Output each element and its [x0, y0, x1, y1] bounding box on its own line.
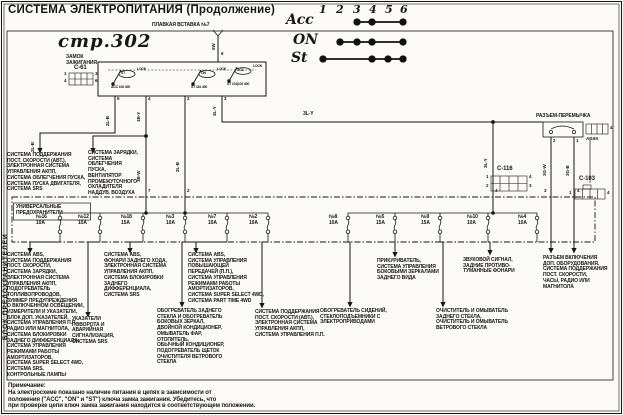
wire-label-2l-b-2: 2L-B [31, 142, 36, 152]
load-block-fuse8: ОБОГРЕВАТЕЛЬ СИДЕНИЙ, СТЕКЛОПОДЪЕМНИКИ С… [320, 309, 392, 326]
fusible-link-label: ПЛАВКАЯ ВСТАВКА №7 [152, 23, 209, 29]
connector-grid-icon-c61 [69, 73, 93, 85]
fuse-icon [393, 213, 397, 242]
wire-label-3l-y-bus: 3L-Y [303, 112, 313, 118]
key-col-3: 3 [353, 4, 361, 15]
wire-label-3g-w: 3G-W [543, 164, 548, 176]
key-col-2: 2 [336, 4, 344, 15]
fuse-5: №515A [376, 215, 385, 226]
fusebox-pin-4: 4 [495, 189, 497, 194]
fuse-7: №710A [208, 215, 217, 226]
wire-label-3g-b: 3G-B [566, 165, 571, 176]
key-row-acc: Acc [286, 13, 314, 27]
load-block-fuse9: ОЧИСТИТЕЛЬ И ОМЫВАТЕЛЬ ЗАДНЕГО СТЕКЛА, О… [436, 309, 510, 332]
junction-dot [492, 121, 495, 124]
load-block-fuse5: ПРИКУРИВАТЕЛЬ, СИСТЕМА УПРАВЛЕНИЯ БОКОВЫ… [377, 259, 447, 282]
pin-6: 6 [221, 52, 223, 57]
fuse-16: №1610A [36, 215, 47, 226]
fuse-8: №810A [329, 215, 338, 226]
fuse-icon [486, 213, 490, 242]
fuse-icon [535, 213, 539, 242]
page-title: СИСТЕМА ЭЛЕКТРОПИТАНИЯ (Продолжение) [8, 4, 275, 17]
jumper-connector-label: РАЗЪЕМ-ПЕРЕМЫЧКА [536, 114, 590, 120]
wire-label-2l-b: 2L-B [106, 116, 111, 126]
fuse-icon [58, 213, 62, 242]
jumper-connector-box [543, 122, 583, 137]
fuse-icon [438, 213, 442, 242]
connector-label-c116: C-116 [497, 167, 513, 173]
load-block-fuse4: РАЗЪЕМ ВКЛЮЧЕНИЯ ДОП. ОБОРУДОВАНИЯ, СИСТ… [543, 256, 609, 290]
c116-pin-4: 4 [529, 175, 531, 180]
fuse-18: №1815A [121, 215, 132, 226]
note-body: На электросхеме показано наличие питания… [8, 390, 608, 410]
key-table-marks [320, 19, 406, 62]
connector-grid-icon-a19x [586, 124, 608, 134]
key-row-on: ON [293, 33, 318, 47]
wire-label-1b-y: 1B-Y [137, 112, 142, 122]
c116-pin-2: 2 [486, 184, 488, 189]
fuse-icon [346, 213, 350, 242]
wire-label-5w: 5W [212, 43, 217, 50]
wiring-diagram-page: СИСТЕМА ЭЛЕКТРОПИТАНИЯ (Продолжение) 1 2… [0, 0, 623, 415]
jumper-pin-1: 1 [576, 139, 578, 144]
fuse-icon [98, 213, 102, 242]
c61-pin-6: 6 [95, 79, 97, 84]
c116-pin-1: 1 [486, 175, 488, 180]
key-col-1: 1 [319, 4, 327, 15]
junction-dot [145, 212, 148, 215]
c61-pin-3: 3 [95, 72, 97, 77]
key-col-5: 5 [385, 4, 393, 15]
jumper-pin-4: 4 [577, 189, 579, 194]
fuse-2: №210A [249, 215, 258, 226]
switch-3-lock-label: LOCK [253, 65, 262, 69]
a19x-pin-4: 4 [610, 126, 612, 131]
switch-2-lock-label: LOCK [217, 68, 226, 72]
ign-pin-2: 2 [187, 97, 189, 102]
wire-branch-charging [93, 136, 146, 148]
connector-label-c103: C-103 [579, 177, 595, 183]
fuse-12: №1210A [78, 215, 89, 226]
connector-label-c61: C-61 [74, 66, 87, 72]
switch-3-label: ACC [237, 69, 244, 73]
switch-1-label: ST [121, 72, 125, 76]
c103-pin-1: 1 [569, 191, 571, 196]
jumper-pin-3: 3 [544, 189, 546, 194]
fusebox-pin-2: 2 [187, 189, 189, 194]
wire-label-3l-y-drop: 3L-Y [484, 158, 489, 168]
load-block-fuse12: УКАЗАТЕЛИ ПОВОРОТА И АВАРИЙНАЯ СИГНАЛИЗА… [72, 317, 122, 346]
wire-2l-b [40, 96, 115, 148]
c61-pin-1: 1 [64, 72, 66, 77]
fuse-icon [141, 213, 145, 242]
switch-1-positions: ACC 100 400 [111, 86, 130, 90]
key-row-st: St [291, 51, 307, 65]
switch-1-lock-label: LOCK [137, 68, 146, 72]
fuse-3: №310A [166, 215, 175, 226]
load-block-charging: СИСТЕМА ЗАРЯДКИ, СИСТЕМА ОБЛЕГЧЕНИЯ ПУСК… [88, 151, 160, 197]
switch-2-positions: ST 181 400 [191, 86, 207, 90]
c61-pin-4: 4 [64, 79, 66, 84]
key-col-4: 4 [369, 4, 377, 15]
load-block-fuse18: СИСТЕМА ABS, ФОНАРИ ЗАДНЕГО ХОДА, ЭЛЕКТР… [104, 253, 168, 299]
ign-pin-3: 3 [224, 97, 226, 102]
load-block-fuse10: ЗВУКОВОЙ СИГНАЛ, ЗАДНИЕ ПРОТИВО- ТУМАННЫ… [463, 258, 525, 275]
fuse-4: №410A [518, 215, 527, 226]
load-block-ignition-a: СИСТЕМА ПОДДЕРЖАНИЯ ПОСТ. СКОРОСТИ (АВТ.… [7, 153, 89, 193]
ign-pin-5: 5 [117, 97, 119, 102]
switch-3-positions: ST 101|102 400 [227, 83, 249, 87]
c116-pin-3: 3 [529, 184, 531, 189]
wire-label-2l-b-3: 2L-B [176, 162, 181, 172]
c103-pin-4: 4 [607, 191, 609, 196]
fuse-icon [183, 213, 187, 242]
wire-3l-y-bus [222, 96, 543, 122]
connector-label-a19x: A-19X [586, 136, 598, 142]
note-title: Примечание: [8, 383, 46, 390]
fuse-9: №915A [421, 215, 430, 226]
load-block-fuse7: ОБОГРЕВАТЕЛЬ ЗАДНЕГО СТЕКЛА И ОБОГРЕВАТЕ… [157, 309, 225, 366]
ign-pin-4: 4 [148, 97, 150, 102]
jumper-pin-2: 2 [553, 139, 555, 144]
fuse-icon [266, 213, 270, 242]
page-ref: стр.302 [58, 33, 151, 51]
fuse-10: №1010A [467, 215, 478, 226]
wire-label-3l-y: 3L-Y [213, 106, 218, 116]
switch-2-label: ON [201, 72, 206, 76]
key-col-6: 6 [400, 4, 408, 15]
junction-dot [492, 212, 495, 215]
load-block-fuse3: СИСТЕМА ABS, СИСТЕМА УПРАВЛЕНИЯ ПОВЫШАЮЩ… [188, 253, 270, 304]
fuse-icon [225, 213, 229, 242]
